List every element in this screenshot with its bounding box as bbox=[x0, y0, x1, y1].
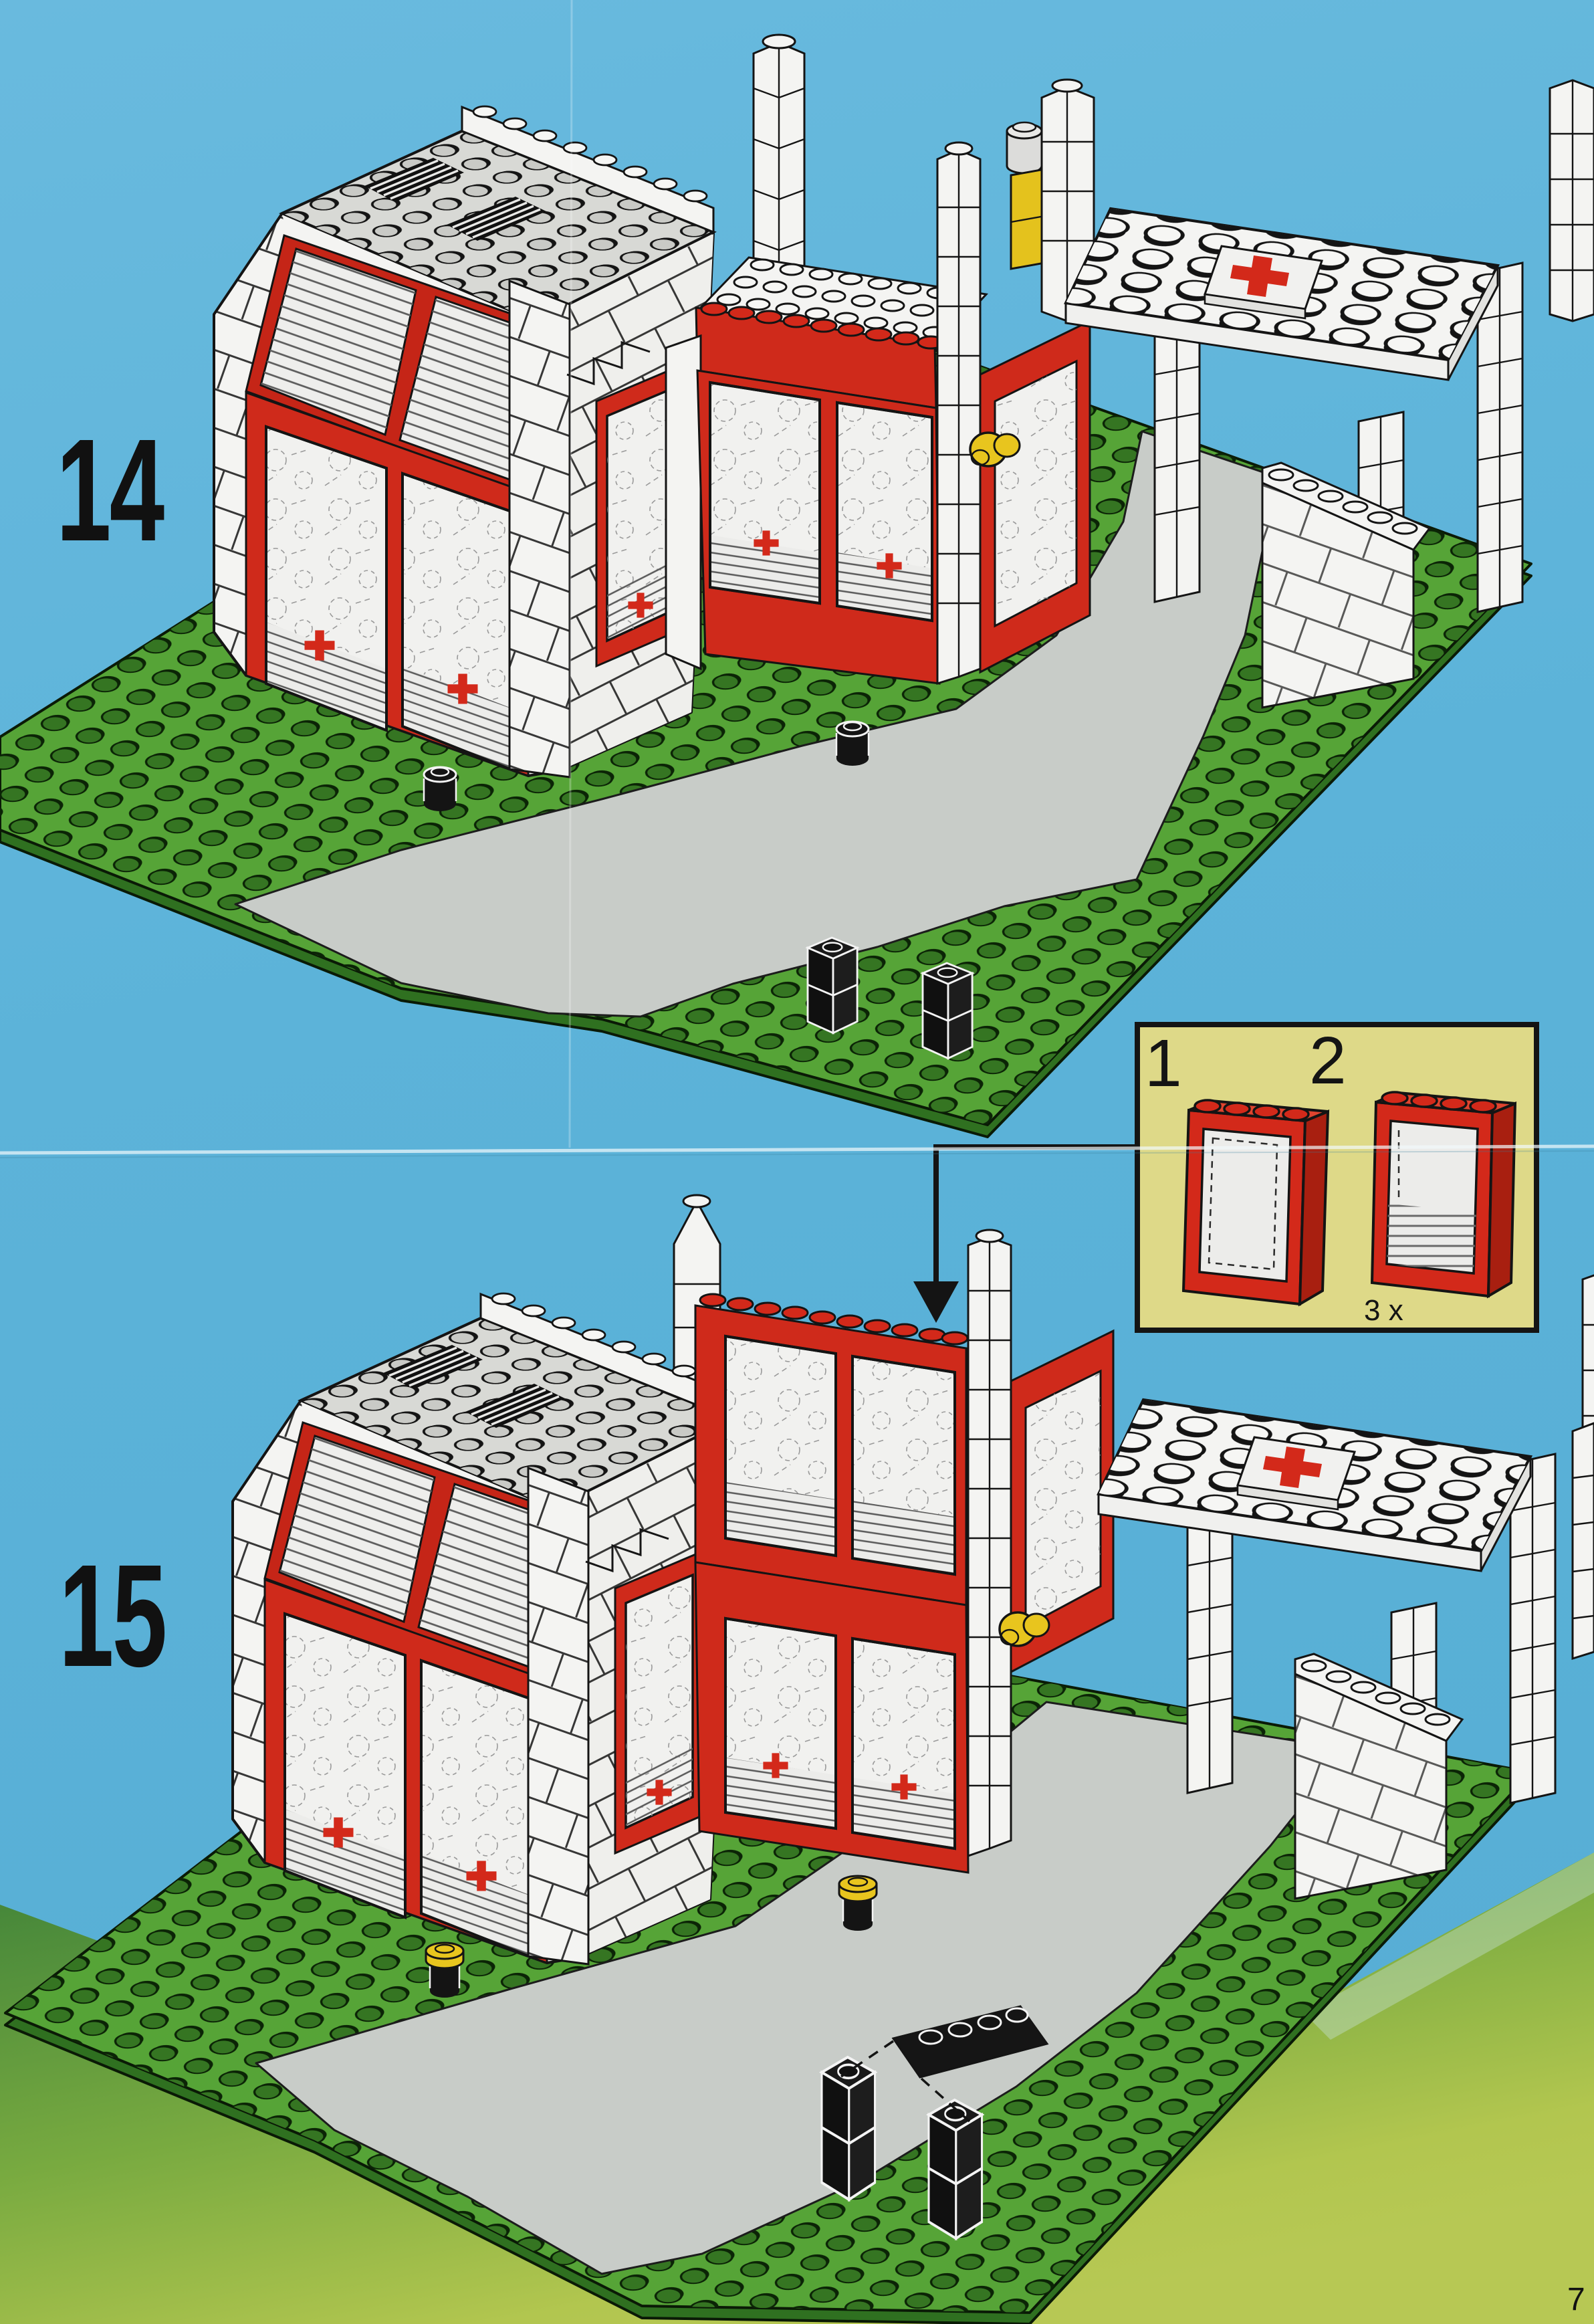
svg-text:14: 14 bbox=[56, 408, 164, 571]
svg-text:3 x: 3 x bbox=[1364, 1294, 1403, 1327]
svg-text:1: 1 bbox=[1145, 1026, 1182, 1101]
svg-text:2: 2 bbox=[1309, 1023, 1347, 1098]
svg-text:7: 7 bbox=[1567, 2282, 1585, 2317]
svg-text:15: 15 bbox=[59, 1534, 165, 1697]
